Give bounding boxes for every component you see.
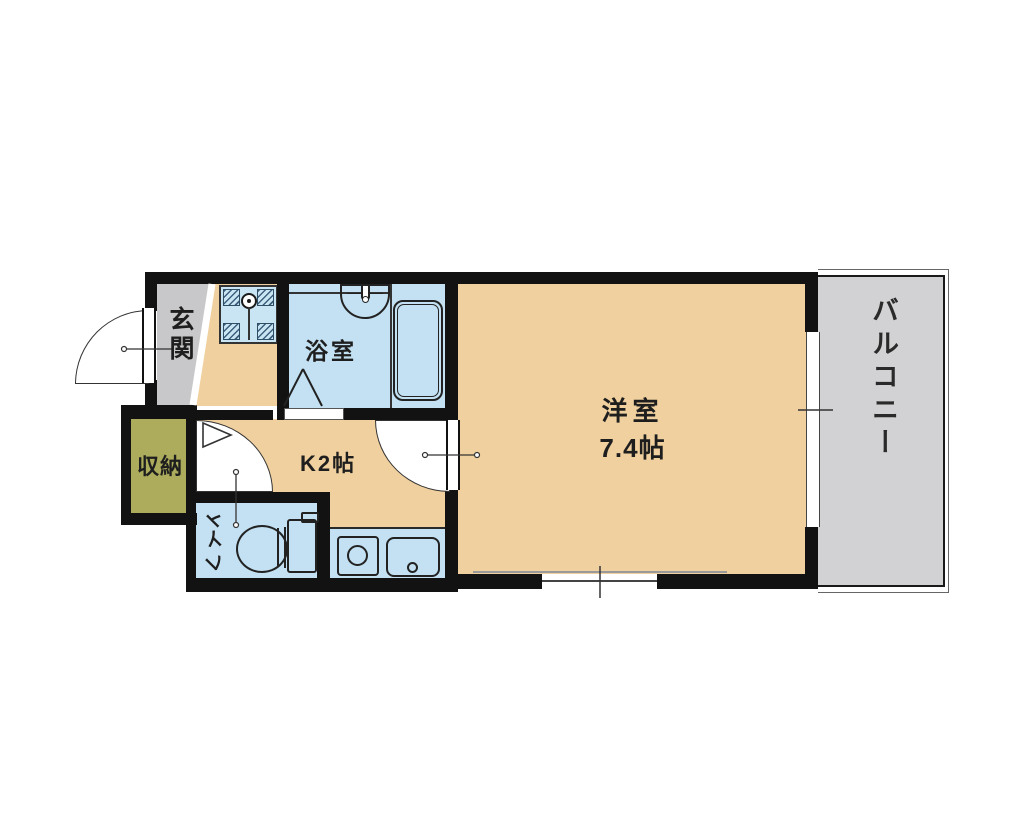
bathtub-inner-line — [397, 304, 439, 397]
western-room-name: 洋室 — [560, 391, 705, 428]
bathroom-divider-line — [390, 284, 392, 408]
wall-balcony-left-lower — [805, 527, 818, 589]
entrance-label: 玄関 — [162, 306, 198, 364]
toilet-handle-icon — [301, 512, 319, 523]
pan-center-line — [248, 307, 250, 340]
floor-plan-canvas: 玄関 浴室 K2帖 洋室 7.4帖 バルコニー 収納 ト イ レ — [0, 0, 1024, 817]
wall-top — [145, 272, 818, 284]
wall-toilet-counter-divider — [317, 492, 330, 592]
wall-storage-left — [121, 405, 131, 525]
pan-hatch-tl — [223, 289, 240, 306]
entrance-door-leaf — [142, 308, 156, 383]
wall-mid-lower — [445, 490, 458, 592]
kitchen-label: K2帖 — [300, 446, 356, 478]
balcony-window — [806, 332, 820, 527]
bathtub-icon — [393, 300, 443, 401]
wall-toilet-top — [186, 492, 330, 503]
wall-left-lower — [145, 380, 157, 407]
washing-machine-pan-icon — [219, 285, 278, 344]
toilet-seat-line-1 — [277, 528, 279, 567]
stove-icon — [337, 536, 379, 576]
storage-label: 収納 — [137, 449, 183, 481]
sink-icon — [386, 537, 440, 577]
wall-bathroom-left — [277, 272, 289, 420]
washbasin-faucet-dot — [362, 296, 369, 303]
bottom-window-mid-line — [542, 580, 657, 582]
toilet-tank-icon — [287, 519, 317, 573]
balcony-label: バルコニー — [864, 296, 903, 461]
main-room-door-leaf — [446, 420, 460, 490]
wall-room-bottom-right — [657, 574, 818, 589]
toilet-bowl-icon — [236, 525, 288, 573]
pan-hatch-br — [257, 323, 274, 340]
wall-room-bottom-left — [458, 574, 542, 589]
bottom-window — [542, 574, 657, 589]
toilet-seat-line-2 — [284, 527, 286, 568]
toilet-label: ト イ レ — [206, 510, 225, 573]
pan-drain-dot — [247, 299, 251, 303]
window-sill-line — [473, 571, 727, 573]
bathroom-door-threshold — [284, 408, 344, 420]
sink-drain-icon — [407, 562, 418, 573]
wall-mid-upper — [445, 272, 458, 420]
wall-storage-right-toilet-left — [186, 415, 196, 592]
pan-hatch-bl — [223, 323, 240, 340]
wall-balcony-left-upper — [805, 272, 818, 332]
wall-bathroom-bottom — [342, 408, 458, 420]
wall-bottom-left-band — [186, 578, 458, 592]
pan-hatch-tr — [257, 289, 274, 306]
entrance-door-swing — [75, 310, 149, 384]
bathroom-label: 浴室 — [305, 332, 357, 366]
wall-over-toilet-door — [195, 410, 273, 420]
wall-left-upper — [145, 272, 157, 311]
stove-burner-icon — [347, 545, 368, 566]
western-room-size: 7.4帖 — [560, 428, 705, 465]
western-room-label: 洋室 7.4帖 — [560, 391, 705, 465]
